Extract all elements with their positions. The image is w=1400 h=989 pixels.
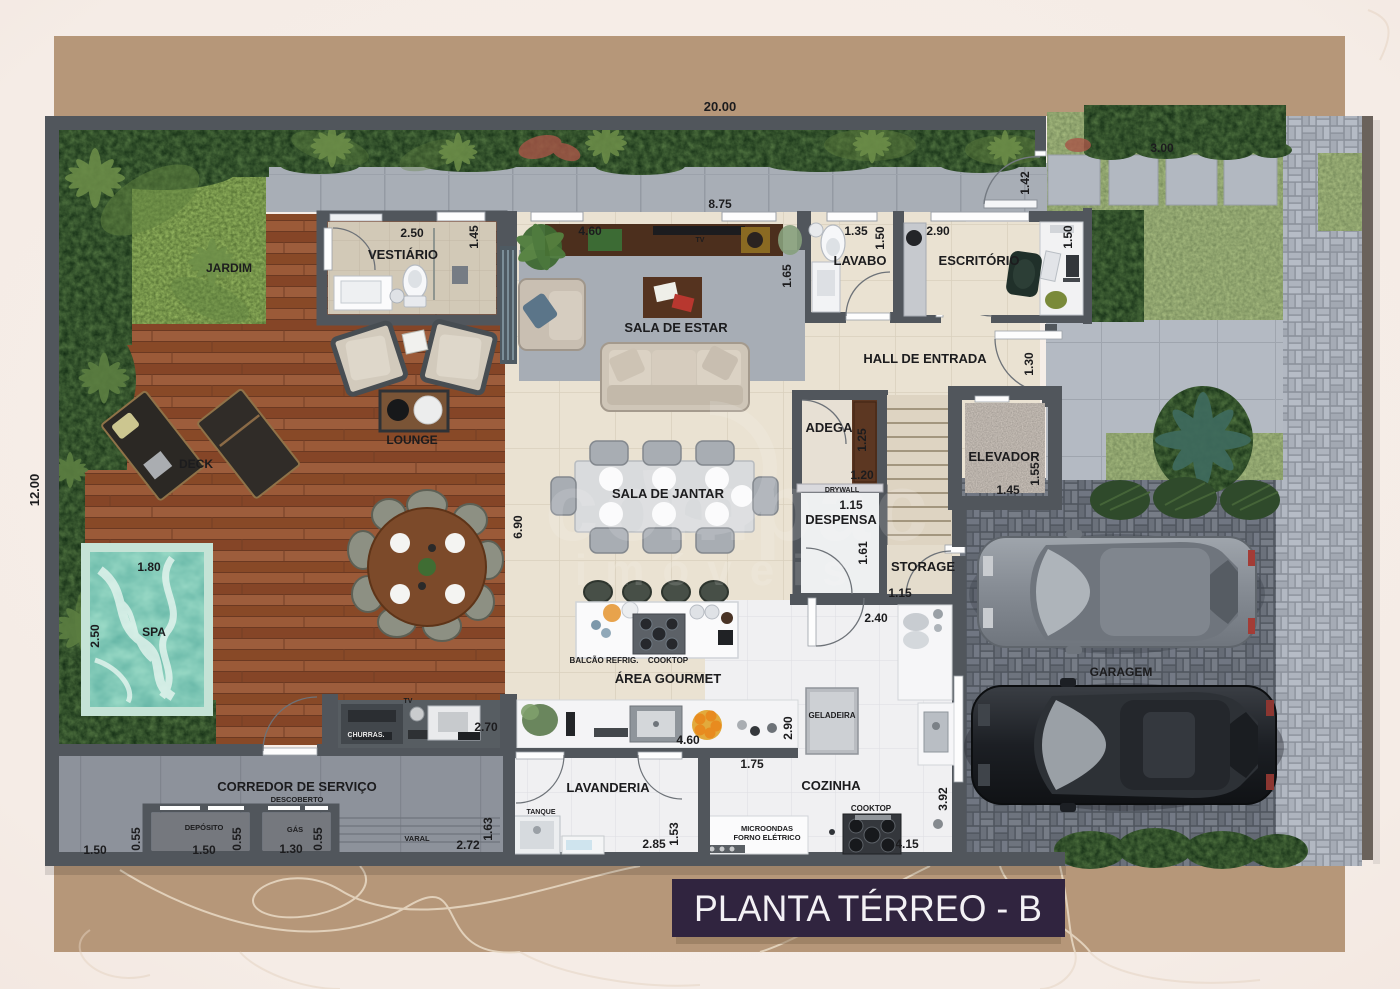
svg-text:1.45: 1.45 — [996, 483, 1020, 497]
svg-text:CHURRAS.: CHURRAS. — [348, 732, 385, 739]
svg-text:GÁS: GÁS — [287, 825, 303, 834]
svg-text:2.40: 2.40 — [864, 611, 888, 625]
svg-text:DESPENSA: DESPENSA — [805, 512, 877, 527]
svg-text:VARAL: VARAL — [404, 834, 430, 843]
svg-text:JARDIM: JARDIM — [206, 261, 252, 275]
svg-text:ESCRITÓRIO: ESCRITÓRIO — [939, 253, 1020, 268]
svg-text:DEPÓSITO: DEPÓSITO — [185, 823, 224, 832]
svg-text:2.85: 2.85 — [642, 837, 666, 851]
svg-text:2.50: 2.50 — [88, 624, 102, 648]
svg-text:TV: TV — [696, 237, 705, 244]
svg-text:1.50: 1.50 — [83, 843, 107, 857]
svg-text:1.15: 1.15 — [839, 498, 863, 512]
svg-text:4.60: 4.60 — [676, 733, 700, 747]
svg-text:DECK: DECK — [179, 457, 213, 471]
svg-text:PLANTA TÉRREO - B: PLANTA TÉRREO - B — [694, 888, 1042, 929]
svg-text:DRYWALL: DRYWALL — [825, 487, 860, 494]
svg-text:LAVABO: LAVABO — [834, 253, 887, 268]
svg-text:1.55: 1.55 — [1028, 462, 1042, 486]
svg-text:COZINHA: COZINHA — [801, 778, 861, 793]
svg-text:0.55: 0.55 — [230, 827, 244, 851]
svg-text:GELADEIRA: GELADEIRA — [808, 711, 855, 720]
svg-text:2.72: 2.72 — [456, 838, 480, 852]
svg-text:0.55: 0.55 — [129, 827, 143, 851]
svg-text:3.92: 3.92 — [936, 787, 950, 811]
svg-text:6.90: 6.90 — [511, 515, 525, 539]
svg-text:compac: compac — [545, 454, 932, 561]
svg-text:COOKTOP: COOKTOP — [648, 656, 689, 665]
svg-text:1.50: 1.50 — [1061, 225, 1075, 249]
svg-text:VESTIÁRIO: VESTIÁRIO — [368, 247, 438, 262]
svg-text:COOKTOP: COOKTOP — [851, 804, 892, 813]
svg-text:SALA DE ESTAR: SALA DE ESTAR — [624, 320, 728, 335]
svg-text:DESCOBERTO: DESCOBERTO — [271, 795, 324, 804]
svg-text:1.63: 1.63 — [481, 817, 495, 841]
svg-text:LOUNGE: LOUNGE — [386, 433, 437, 447]
svg-text:ÁREA GOURMET: ÁREA GOURMET — [615, 671, 721, 686]
svg-text:1.30: 1.30 — [279, 842, 303, 856]
svg-text:1.42: 1.42 — [1018, 171, 1032, 195]
svg-text:4.15: 4.15 — [895, 837, 919, 851]
svg-text:GARAGEM: GARAGEM — [1090, 665, 1153, 679]
svg-text:1.25: 1.25 — [855, 428, 869, 452]
svg-text:1.75: 1.75 — [740, 757, 764, 771]
svg-text:8.75: 8.75 — [708, 197, 732, 211]
svg-text:SALA DE JANTAR: SALA DE JANTAR — [612, 486, 725, 501]
svg-text:SPA: SPA — [142, 625, 166, 639]
svg-text:LAVANDERIA: LAVANDERIA — [566, 780, 650, 795]
svg-text:3.00: 3.00 — [1150, 141, 1174, 155]
svg-text:BALCÃO REFRIG.: BALCÃO REFRIG. — [570, 656, 639, 665]
svg-text:1.61: 1.61 — [856, 541, 870, 565]
svg-text:ADEGA: ADEGA — [806, 420, 854, 435]
svg-text:2.90: 2.90 — [926, 224, 950, 238]
svg-text:0.55: 0.55 — [311, 827, 325, 851]
svg-text:4.60: 4.60 — [578, 224, 602, 238]
svg-text:1.65: 1.65 — [780, 264, 794, 288]
svg-text:1.45: 1.45 — [467, 225, 481, 249]
svg-text:CORREDOR DE SERVIÇO: CORREDOR DE SERVIÇO — [217, 779, 376, 794]
svg-text:FORNO ELÉTRICO: FORNO ELÉTRICO — [733, 833, 800, 842]
svg-text:2.90: 2.90 — [781, 716, 795, 740]
svg-text:1.15: 1.15 — [888, 586, 912, 600]
svg-text:HALL DE ENTRADA: HALL DE ENTRADA — [863, 351, 987, 366]
svg-text:TANQUE: TANQUE — [526, 809, 555, 816]
svg-text:imóveis: imóveis — [575, 546, 865, 595]
svg-text:1.50: 1.50 — [873, 226, 887, 250]
svg-text:1.30: 1.30 — [1022, 352, 1036, 376]
svg-text:12.00: 12.00 — [27, 474, 42, 507]
svg-text:1.35: 1.35 — [844, 224, 868, 238]
svg-text:2.50: 2.50 — [400, 226, 424, 240]
svg-text:TV: TV — [404, 698, 413, 705]
svg-text:2.70: 2.70 — [474, 720, 498, 734]
svg-text:1.80: 1.80 — [137, 560, 161, 574]
svg-text:20.00: 20.00 — [704, 99, 737, 114]
svg-text:1.53: 1.53 — [667, 822, 681, 846]
svg-text:MICROONDAS: MICROONDAS — [741, 824, 793, 833]
svg-text:1.20: 1.20 — [850, 468, 874, 482]
svg-text:STORAGE: STORAGE — [891, 559, 955, 574]
svg-text:ELEVADOR: ELEVADOR — [968, 449, 1040, 464]
svg-text:1.50: 1.50 — [192, 843, 216, 857]
